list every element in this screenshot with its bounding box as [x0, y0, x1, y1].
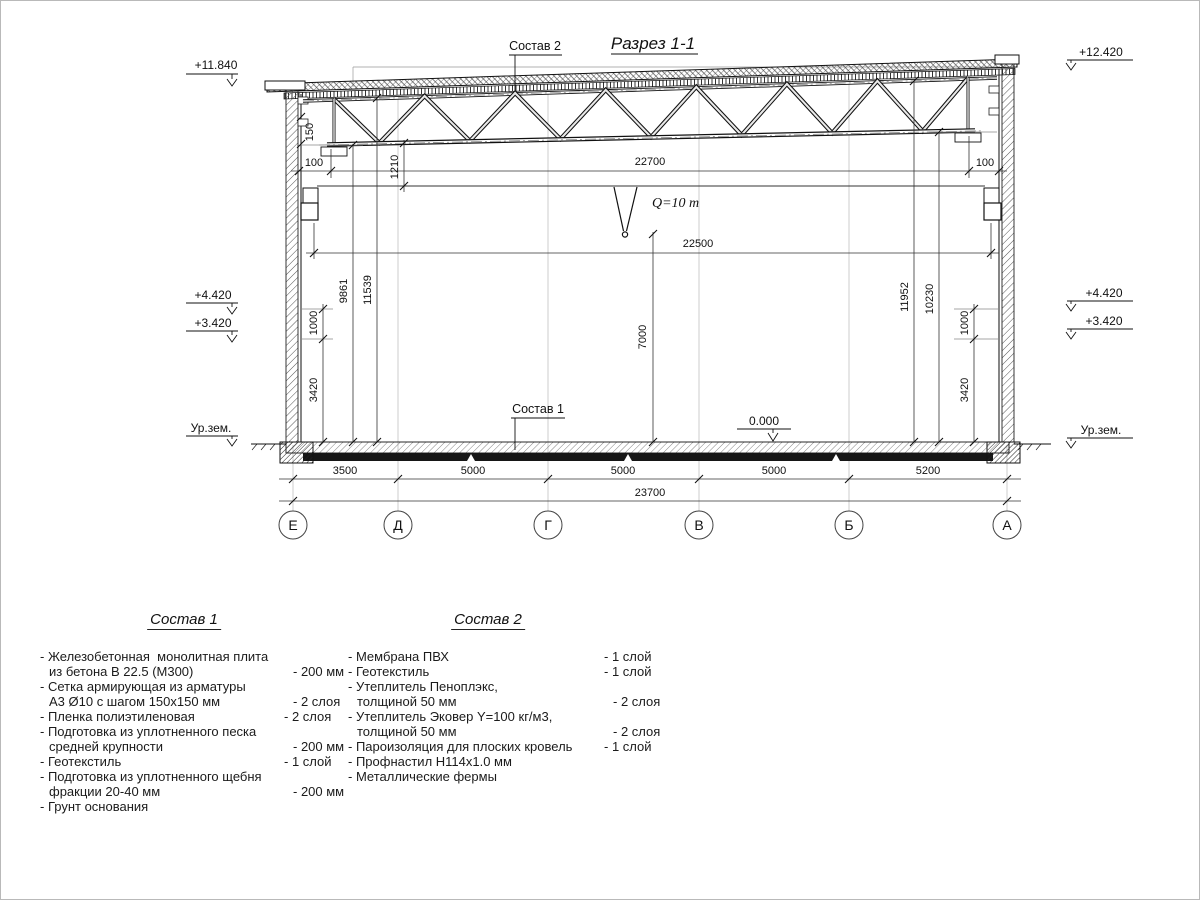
legend-item-line: - Профнастил Н114х1.0 мм [348, 754, 660, 769]
axis-letter: В [694, 517, 703, 533]
axis-letter: Г [544, 517, 552, 533]
dim-span-1: 3500 [333, 465, 357, 477]
legend-item-value: - 1 слой [604, 739, 652, 754]
legend-item-text: - Мембрана ПВХ [348, 649, 604, 664]
legend-item-text: - Пароизоляция для плоских кровель [348, 739, 604, 754]
dim-11539: 11539 [362, 275, 374, 305]
legend-item-line: - Пленка полиэтиленовая- 2 слоя [40, 709, 344, 724]
elevation-left-ground: Ур.зем. [186, 421, 238, 446]
elevation-text: 0.000 [749, 414, 779, 428]
legend-item-line: - Пароизоляция для плоских кровель- 1 сл… [348, 739, 660, 754]
legend-item-line: - Утеплитель Пеноплэкс, [348, 679, 660, 694]
legend-item-text: - Геотекстиль [348, 664, 604, 679]
elevation-right-parapet: +12.420 [1066, 45, 1133, 70]
legend-item-line: толщиной 50 мм- 2 слоя [348, 724, 660, 739]
legend-item-text: толщиной 50 мм [348, 694, 613, 709]
legend-item-line: - Грунт основания [40, 799, 344, 814]
elevation-left-lower: +3.420 [186, 316, 238, 342]
dim-total-23700: 23700 [635, 487, 666, 499]
legend-item-value: - 200 мм [293, 664, 344, 679]
section-drawing: Разрез 1-1 [1, 1, 1200, 591]
legend-item-line: - Железобетонная монолитная плита [40, 649, 344, 664]
legend-item-text: - Профнастил Н114х1.0 мм [348, 754, 604, 769]
callout-sostav-1-text: Состав 1 [512, 402, 564, 416]
legend-item-text: - Железобетонная монолитная плита [40, 649, 284, 664]
dim-span-3: 5000 [611, 465, 635, 477]
dim-10230: 10230 [924, 284, 936, 315]
dim-22500: 22500 [683, 238, 714, 250]
legend-sostav-2: - Мембрана ПВХ- 1 слой- Геотекстиль- 1 с… [348, 649, 660, 784]
legend-item-value: - 1 слой [284, 754, 332, 769]
dim-span-2: 5000 [461, 465, 485, 477]
dim-22700: 22700 [635, 156, 666, 168]
elevation-right-ground: Ур.зем. [1066, 423, 1133, 448]
legend-item-value: - 1 слой [604, 649, 652, 664]
legend-item-text: - Утеплитель Эковер Y=100 кг/м3, [348, 709, 604, 724]
axis-letter: А [1002, 517, 1012, 533]
elevation-text: Ур.зем. [191, 421, 232, 435]
legend-item-line: толщиной 50 мм- 2 слоя [348, 694, 660, 709]
axis-letter: Е [288, 517, 297, 533]
crane-beam-right [984, 188, 999, 203]
elevation-text: +11.840 [195, 58, 238, 72]
legend-item-value: - 2 слоя [293, 694, 340, 709]
crane-hook [614, 187, 637, 237]
legend-item-line: А3 Ø10 с шагом 150х150 мм- 2 слоя [40, 694, 344, 709]
dim-100-left: 100 [305, 157, 323, 169]
crane-beam-left [303, 188, 318, 203]
foundation-right [987, 442, 1020, 463]
dim-1000-right: 1000 [959, 311, 971, 335]
dim-1000-left: 1000 [308, 311, 320, 335]
axis-bubble-e: Е [279, 511, 307, 539]
drawing-sheet: Разрез 1-1 [0, 0, 1200, 900]
dim-3420-right: 3420 [959, 378, 971, 402]
roof-assembly [265, 55, 1019, 99]
foundation-left [280, 442, 313, 463]
legend-item-text: фракции 20-40 мм [40, 784, 293, 799]
elevation-text: +3.420 [194, 316, 231, 330]
axis-bubble-g: Г [534, 511, 562, 539]
legend-1-title: Состав 1 [147, 611, 221, 630]
legend-item-text: из бетона В 22.5 (М300) [40, 664, 293, 679]
elevation-floor-zero: 0.000 [737, 414, 791, 441]
legend-item-value: - 2 слоя [613, 694, 660, 709]
legend-2-title: Состав 2 [451, 611, 525, 630]
left-parapet-cap [265, 81, 305, 90]
legend-item-value: - 200 мм [293, 739, 344, 754]
legend-item-line: - Утеплитель Эковер Y=100 кг/м3, [348, 709, 660, 724]
right-parapet-cap [995, 55, 1019, 64]
legend-item-line: - Мембрана ПВХ- 1 слой [348, 649, 660, 664]
legend-item-line: средней крупности- 200 мм [40, 739, 344, 754]
dim-11952: 11952 [899, 282, 911, 312]
left-wall [286, 90, 308, 442]
truss-seat-left [321, 147, 347, 156]
legend-item-value: - 2 слоя [284, 709, 331, 724]
elevation-text: +12.420 [1079, 45, 1123, 59]
dim-3420-left: 3420 [308, 378, 320, 402]
elevation-left-upper: +4.420 [186, 288, 238, 314]
dim-span-4: 5000 [762, 465, 786, 477]
dim-100-right: 100 [976, 157, 994, 169]
crane-capacity-label: Q=10 т [652, 196, 699, 211]
axis-letter: Б [844, 517, 853, 533]
drawing-title-text: Разрез 1-1 [611, 34, 695, 53]
dim-150: 150 [304, 123, 316, 141]
elevation-text: +3.420 [1085, 314, 1122, 328]
axis-bubble-d: Д [384, 511, 412, 539]
dim-1210: 1210 [389, 155, 401, 179]
legend-item-line: - Металлические фермы [348, 769, 660, 784]
legend-item-text: средней крупности [40, 739, 293, 754]
legend-item-line: - Подготовка из уплотненного песка [40, 724, 344, 739]
legend-item-value: - 2 слоя [613, 724, 660, 739]
legend-item-text: - Подготовка из уплотненного песка [40, 724, 284, 739]
elevation-right-lower: +3.420 [1066, 314, 1133, 339]
crane-bracket-left [301, 203, 318, 220]
legend-item-text: - Утеплитель Пеноплэкс, [348, 679, 604, 694]
legend-item-line: из бетона В 22.5 (М300)- 200 мм [40, 664, 344, 679]
truss-seat-right [955, 133, 981, 142]
axis-bubble-a: А [993, 511, 1021, 539]
legend-item-text: - Геотекстиль [40, 754, 284, 769]
legend-item-line: фракции 20-40 мм- 200 мм [40, 784, 344, 799]
legend-item-line: - Геотекстиль- 1 слой [348, 664, 660, 679]
legend-item-text: - Пленка полиэтиленовая [40, 709, 284, 724]
legend-item-line: - Геотекстиль- 1 слой [40, 754, 344, 769]
legend-item-text: толщиной 50 мм [348, 724, 613, 739]
dim-span-5: 5200 [916, 465, 940, 477]
axis-letter: Д [393, 517, 403, 533]
elevation-right-upper: +4.420 [1066, 286, 1133, 311]
legend-item-line: - Подготовка из уплотненного щебня [40, 769, 344, 784]
elevation-text: Ур.зем. [1081, 423, 1122, 437]
legend-item-text: - Металлические фермы [348, 769, 604, 784]
legend-item-text: - Грунт основания [40, 799, 284, 814]
elevation-left-parapet: +11.840 [186, 58, 238, 86]
axis-bubble-b: Б [835, 511, 863, 539]
axis-bubbles: Е Д Г В Б А [279, 511, 1021, 539]
legend-item-value: - 1 слой [604, 664, 652, 679]
axis-bubble-v: В [685, 511, 713, 539]
legend-item-line: - Сетка армирующая из арматуры [40, 679, 344, 694]
legend-item-value: - 200 мм [293, 784, 344, 799]
crane-runway [301, 186, 1001, 220]
legend-item-text: - Сетка армирующая из арматуры [40, 679, 284, 694]
legend-item-text: А3 Ø10 с шагом 150х150 мм [40, 694, 293, 709]
legend-item-text: - Подготовка из уплотненного щебня [40, 769, 284, 784]
dim-9861: 9861 [338, 279, 350, 303]
crane-bracket-right [984, 203, 1001, 220]
elevation-text: +4.420 [1085, 286, 1122, 300]
elevation-text: +4.420 [194, 288, 231, 302]
drawing-title: Разрез 1-1 [611, 34, 698, 54]
dim-7000: 7000 [637, 325, 649, 349]
callout-sostav-2-text: Состав 2 [509, 39, 561, 53]
legend-sostav-1: - Железобетонная монолитная плитаиз бето… [40, 649, 344, 814]
